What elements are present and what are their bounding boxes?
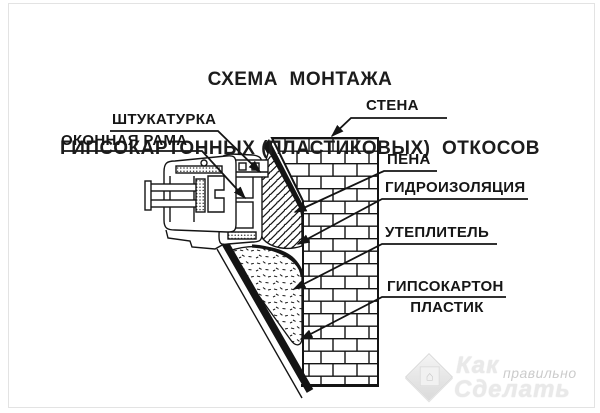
label-wall: СТЕНА (366, 98, 419, 114)
watermark: ⌂ Как правильно Сделать (398, 352, 593, 408)
label-plaster: ШТУКАТУРКА (112, 112, 216, 128)
watermark-diamond-logo: ⌂ (405, 353, 453, 401)
label-waterproofing: ГИДРОИЗОЛЯЦИЯ (385, 180, 525, 196)
watermark-word-3: Сделать (454, 376, 571, 404)
label-insulation: УТЕПЛИТЕЛЬ (385, 225, 489, 241)
label-drywall: ГИПСОКАРТОН (387, 279, 504, 295)
house-icon: ⌂ (420, 366, 440, 386)
label-window-frame: ОКОННАЯ РАМА (61, 133, 187, 149)
label-plastic: ПЛАСТИК (387, 300, 507, 316)
title-line-1: СХЕМА МОНТАЖА (0, 68, 600, 91)
diagram-page: СХЕМА МОНТАЖА ГИПСОКАРТОННЫХ (ПЛАСТИКОВЫ… (0, 0, 600, 413)
label-foam: ПЕНА (387, 152, 431, 168)
